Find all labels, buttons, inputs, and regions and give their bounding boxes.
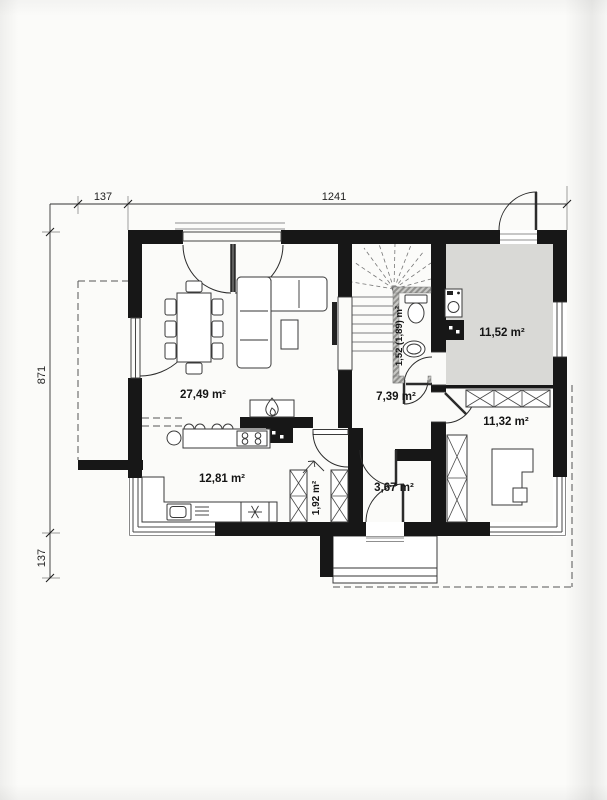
- vestibule-label: 3,67 m²: [374, 482, 414, 494]
- pantry-label: 1,92 m²: [311, 480, 322, 515]
- stair-treads: [352, 297, 393, 351]
- washing-machine-icon: [445, 289, 462, 317]
- entry-porch: [320, 536, 437, 583]
- bedroom-left-wall-top: [431, 385, 446, 392]
- kitchen-fixtures: [142, 398, 294, 522]
- kitchen-door: [313, 430, 348, 468]
- dining-table-set: [165, 281, 223, 374]
- tv-sideboard: [332, 302, 337, 345]
- bathroom-wall-bottom-l: [393, 376, 404, 383]
- living-hall-opening: [338, 297, 352, 370]
- washbasin-icon: [403, 341, 425, 357]
- toilet-icon: [405, 295, 427, 323]
- bedroom-left-wall: [431, 422, 446, 522]
- living-hall-wall: [338, 244, 352, 297]
- hall-label: 7,39 m²: [376, 391, 416, 403]
- hall-utility-wall: [431, 244, 446, 352]
- dim-top-main: 1241: [322, 191, 346, 203]
- floor-plan-drawing: 137 1241 871 137: [0, 0, 607, 800]
- kitchen-island: [183, 429, 270, 448]
- fireplace: [250, 398, 294, 417]
- wardrobe-x-left: [290, 470, 307, 522]
- bedroom-label: 11,32 m²: [483, 416, 529, 428]
- dim-left-bottom: 137: [36, 549, 48, 567]
- stair-winder-rays: [352, 244, 431, 289]
- dim-top-left: 137: [94, 191, 112, 203]
- bathroom-wall-top: [393, 287, 431, 293]
- desk-chair: [513, 488, 527, 502]
- wardrobe-x-side: [447, 435, 467, 522]
- living-furniture: [165, 277, 337, 374]
- living-room-label: 27,49 m²: [180, 389, 226, 401]
- kitchen-label: 12,81 m²: [199, 473, 245, 485]
- sink-icon: [167, 504, 191, 520]
- bathroom-label: 1,52 (1,89) m²: [394, 306, 405, 366]
- hall-vestibule-wall: [395, 449, 431, 461]
- living-hall-wall-lower: [338, 370, 352, 428]
- coffee-table: [281, 320, 298, 349]
- wardrobe-x-top: [466, 390, 550, 407]
- vestibule-left-wall: [348, 428, 363, 522]
- vestibule-door: [360, 450, 396, 486]
- chimney-wall: [240, 417, 313, 428]
- utility-fixtures: [445, 289, 464, 340]
- utility-bedroom-divider: [446, 385, 553, 389]
- porch-side-wall: [320, 536, 333, 577]
- utility-entry-door: [499, 192, 537, 244]
- scanned-floor-plan-page: 137 1241 871 137: [0, 0, 607, 800]
- bathroom-wall-bottom-r: [428, 376, 431, 383]
- dim-left-main: 871: [36, 366, 48, 384]
- utility-window: [553, 302, 567, 357]
- wardrobe-x-right: [331, 470, 348, 522]
- utility-room-label: 11,52 m²: [479, 327, 525, 339]
- boiler-icon: [445, 320, 464, 340]
